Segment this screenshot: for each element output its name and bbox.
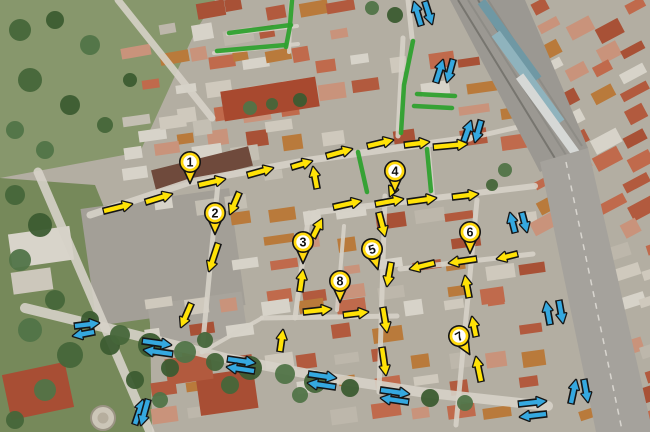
- closed-street-line: [417, 94, 455, 96]
- marker-number: 6: [467, 226, 474, 240]
- marker-number: 8: [337, 275, 344, 289]
- satellite-background: [0, 0, 650, 432]
- marker-number: 2: [212, 207, 219, 221]
- marker-number: 4: [392, 165, 399, 179]
- marker-number: 1: [187, 156, 194, 170]
- map-canvas: 12345678: [0, 0, 650, 432]
- closed-street-line: [414, 106, 452, 108]
- satellite-map: 12345678: [0, 0, 650, 432]
- marker-number: 3: [300, 236, 307, 250]
- closed-street-line: [290, 0, 292, 25]
- amphitheatre: [91, 406, 115, 430]
